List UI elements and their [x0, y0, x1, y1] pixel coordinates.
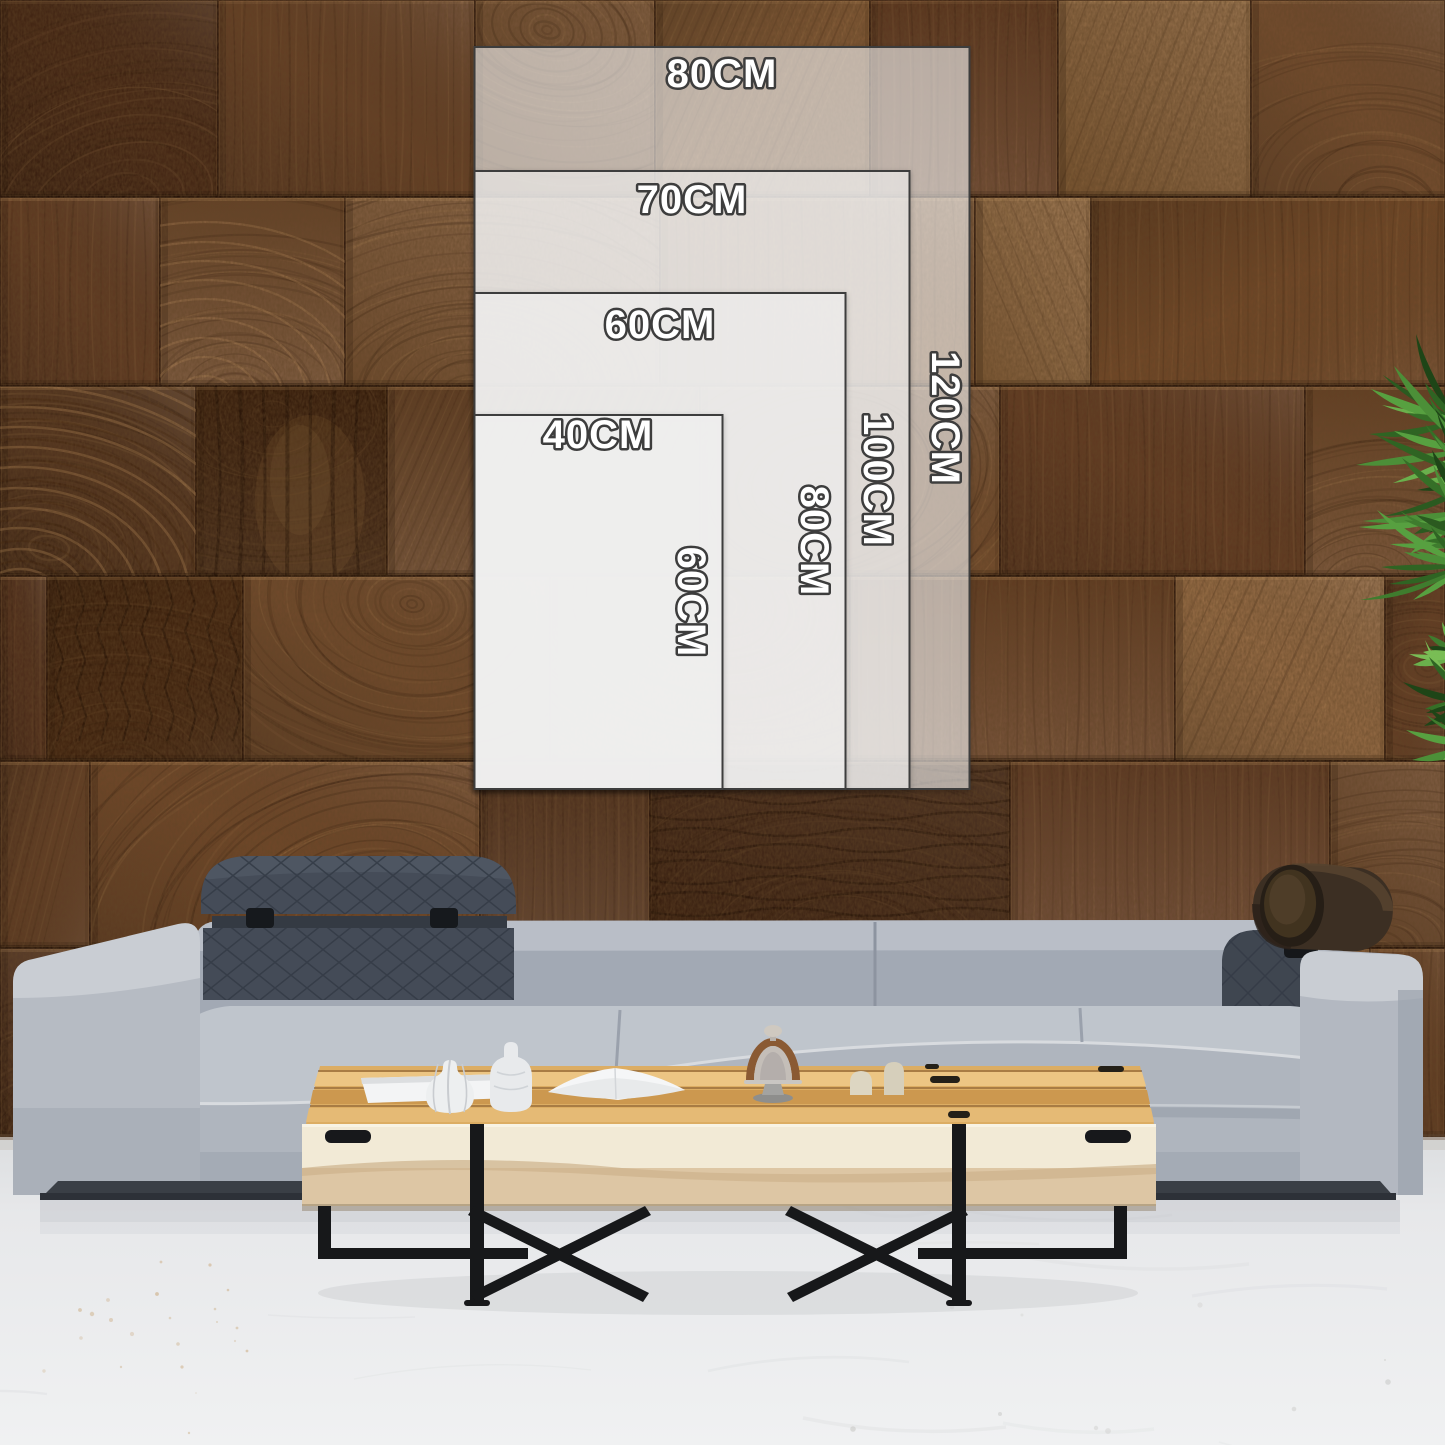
svg-text:40CM: 40CM [543, 413, 654, 457]
svg-text:60CM: 60CM [669, 547, 713, 658]
svg-text:100CM: 100CM [855, 413, 899, 547]
svg-text:80CM: 80CM [792, 486, 836, 597]
svg-text:70CM: 70CM [637, 178, 748, 222]
svg-text:120CM: 120CM [923, 351, 967, 485]
svg-text:80CM: 80CM [667, 52, 778, 96]
svg-text:60CM: 60CM [605, 303, 716, 347]
